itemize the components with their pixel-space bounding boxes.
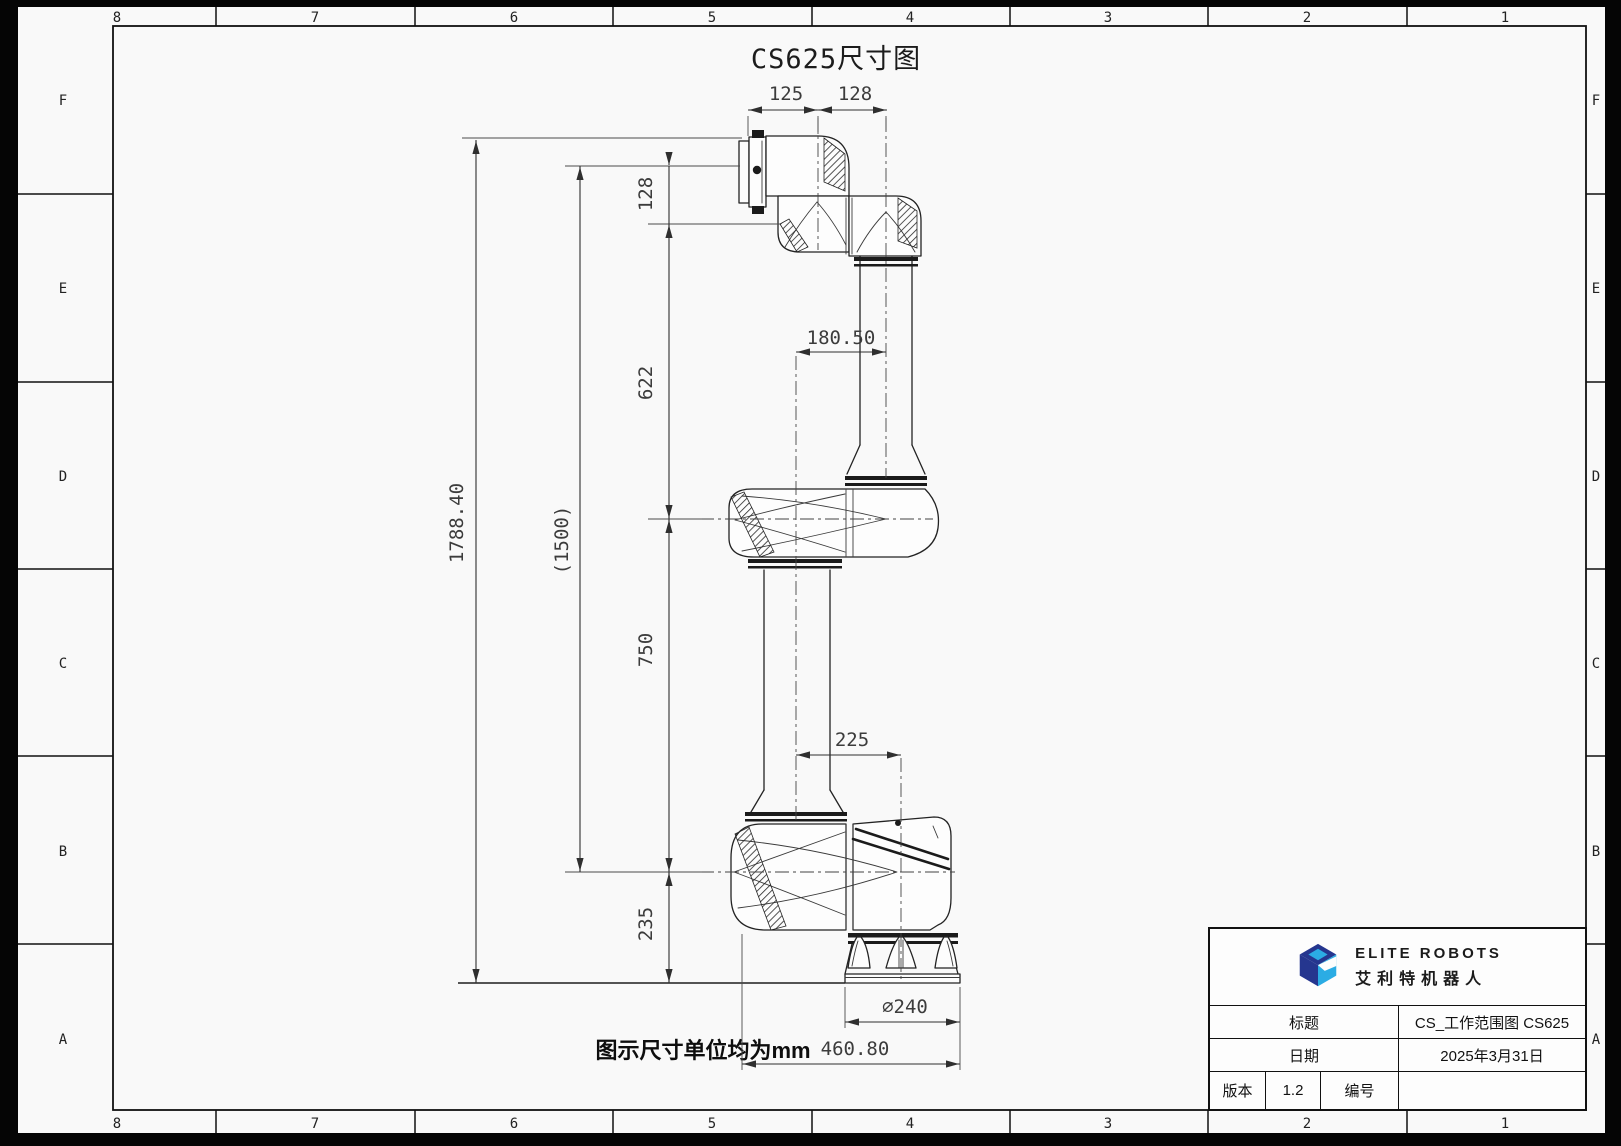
dim-1500: (1500) [551,506,573,575]
zone-col-label: 8 [113,1116,121,1132]
wrist3-joint [766,136,849,196]
dim-128-top: 128 [838,83,872,105]
zone-col-label: 2 [1303,1116,1311,1132]
units-caption: 图示尺寸单位均为mm [595,1038,810,1063]
zone-col-label: 2 [1303,10,1311,26]
zone-col-label: 5 [708,10,716,26]
dim-180: 180.50 [807,327,876,349]
base-pedestal [845,937,960,983]
version-value: 1.2 [1266,1072,1321,1109]
dim-750: 750 [635,633,657,667]
title-block: ELITE ROBOTS 艾利特机器人 标题 CS_工作范围图 CS625 日期… [1208,927,1587,1111]
dim-240: ∅240 [882,996,928,1018]
wrist2-joint [778,196,849,252]
brand-row: ELITE ROBOTS 艾利特机器人 [1210,929,1585,1006]
zone-row-label: B [1592,844,1600,860]
zone-col-label: 8 [113,10,121,26]
zone-col-label: 4 [906,1116,914,1132]
zone-row-label: C [59,656,67,672]
zone-row-label: F [1592,93,1600,109]
date-value: 2025年3月31日 [1399,1039,1585,1071]
shoulder-joint [731,817,958,944]
date-row: 日期 2025年3月31日 [1210,1039,1585,1072]
date-label: 日期 [1210,1039,1399,1071]
zone-col-label: 1 [1501,10,1509,26]
title-label: 标题 [1210,1006,1399,1038]
title-row: 标题 CS_工作范围图 CS625 [1210,1006,1585,1039]
zone-row-label: A [59,1032,68,1048]
zone-col-label: 6 [510,1116,518,1132]
dim-235: 235 [635,907,657,941]
dim-128-seg: 128 [635,177,657,211]
zone-row-label: E [1592,281,1600,297]
dim-225: 225 [835,729,869,751]
robot-arm-drawing [458,118,960,983]
zone-col-label: 7 [311,1116,319,1132]
zone-col-label: 5 [708,1116,716,1132]
zone-col-label: 1 [1501,1116,1509,1132]
dim-1788: 1788.40 [446,483,468,563]
zone-row-label: C [1592,656,1600,672]
zone-row-label: B [59,844,67,860]
wrist1-joint [846,196,921,256]
version-label: 版本 [1210,1072,1266,1109]
zone-row-label: D [59,469,67,485]
zone-row-label: F [59,93,67,109]
zone-col-label: 6 [510,10,518,26]
brand-name-cn: 艾利特机器人 [1355,965,1502,989]
tool-flange [739,130,766,214]
number-label: 编号 [1321,1072,1399,1109]
zone-row-label: D [1592,469,1600,485]
brand-name-en: ELITE ROBOTS [1355,945,1502,962]
zone-row-label: A [1592,1032,1601,1048]
zone-col-label: 4 [906,10,914,26]
version-row: 版本 1.2 编号 [1210,1072,1585,1109]
dim-125: 125 [769,83,803,105]
drawing-title: CS625尺寸图 [751,44,921,75]
dim-460: 460.80 [821,1038,890,1060]
title-value: CS_工作范围图 CS625 [1399,1006,1585,1038]
dim-622: 622 [635,366,657,400]
brand-text: ELITE ROBOTS 艾利特机器人 [1355,945,1502,989]
elite-robots-logo-icon [1293,940,1343,994]
zone-row-label: E [59,281,67,297]
zone-col-label: 3 [1104,1116,1112,1132]
number-value [1399,1072,1585,1109]
zone-col-label: 3 [1104,10,1112,26]
elbow-joint [729,489,938,557]
zone-col-label: 7 [311,10,319,26]
